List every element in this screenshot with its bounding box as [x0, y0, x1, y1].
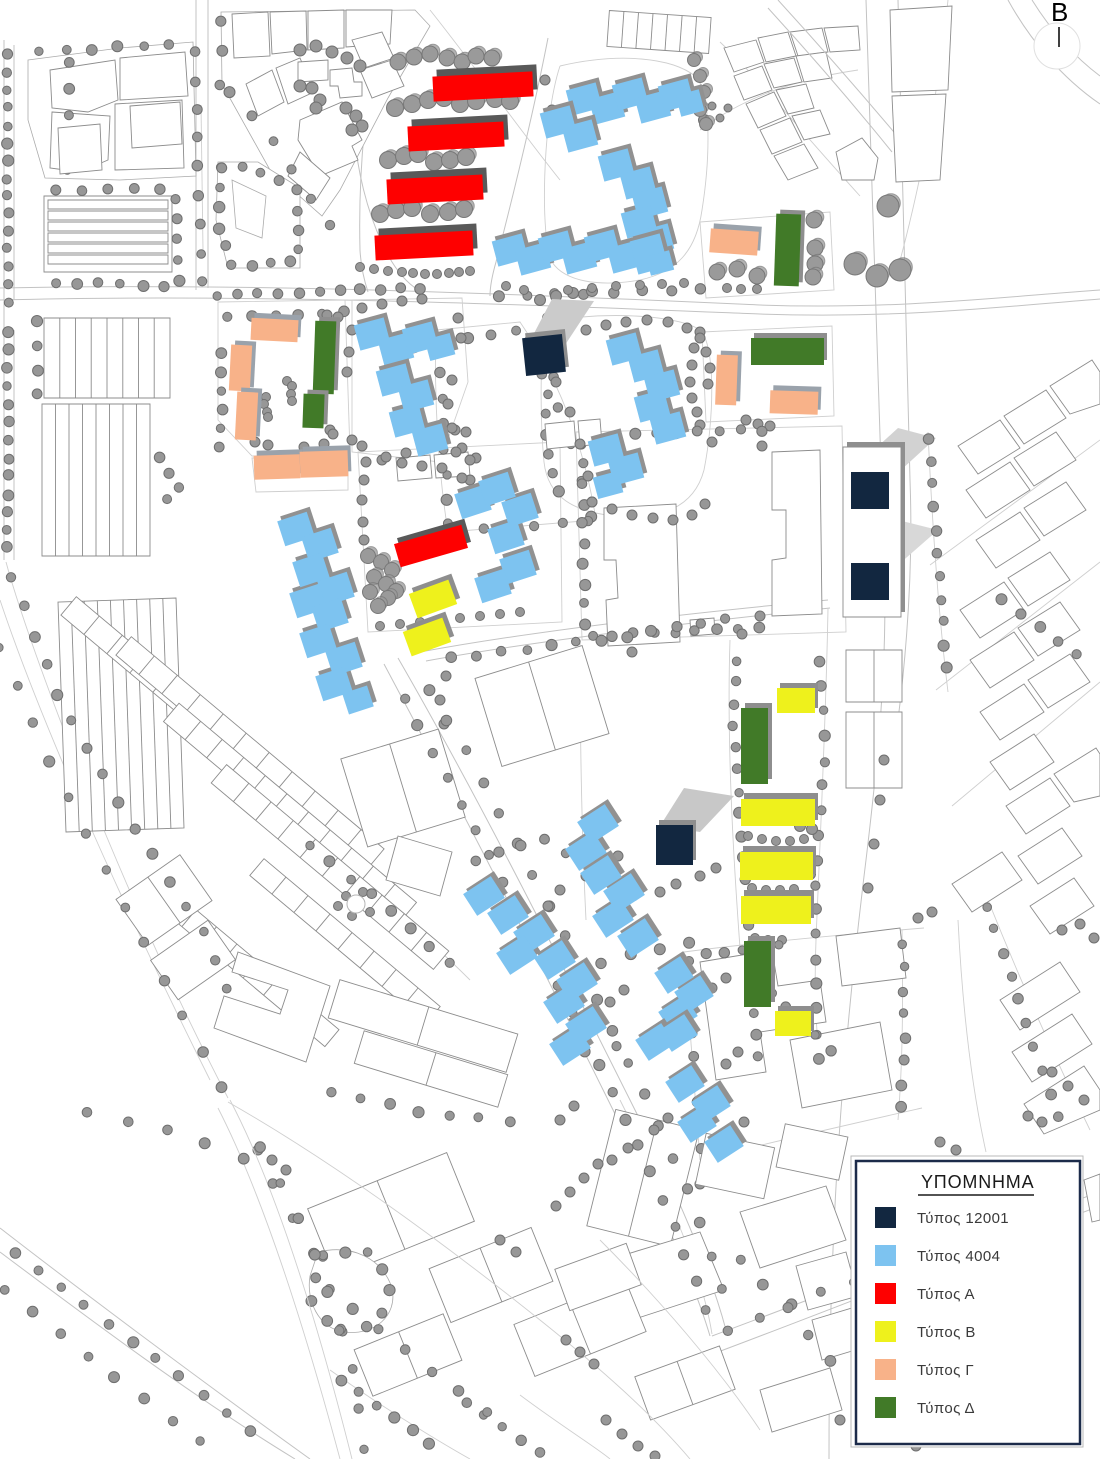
svg-text:Τύπος 12001: Τύπος 12001 — [917, 1210, 1009, 1227]
svg-text:Τύπος 4004: Τύπος 4004 — [917, 1248, 1000, 1265]
svg-text:Τύπος Γ: Τύπος Γ — [917, 1362, 974, 1379]
svg-text:Τύπος Β: Τύπος Β — [917, 1324, 976, 1341]
svg-text:ΥΠΟΜΝΗΜΑ: ΥΠΟΜΝΗΜΑ — [921, 1172, 1034, 1192]
svg-text:Τύπος Δ: Τύπος Δ — [917, 1400, 975, 1417]
svg-text:B: B — [1051, 0, 1068, 27]
svg-text:Τύπος Α: Τύπος Α — [917, 1286, 975, 1303]
